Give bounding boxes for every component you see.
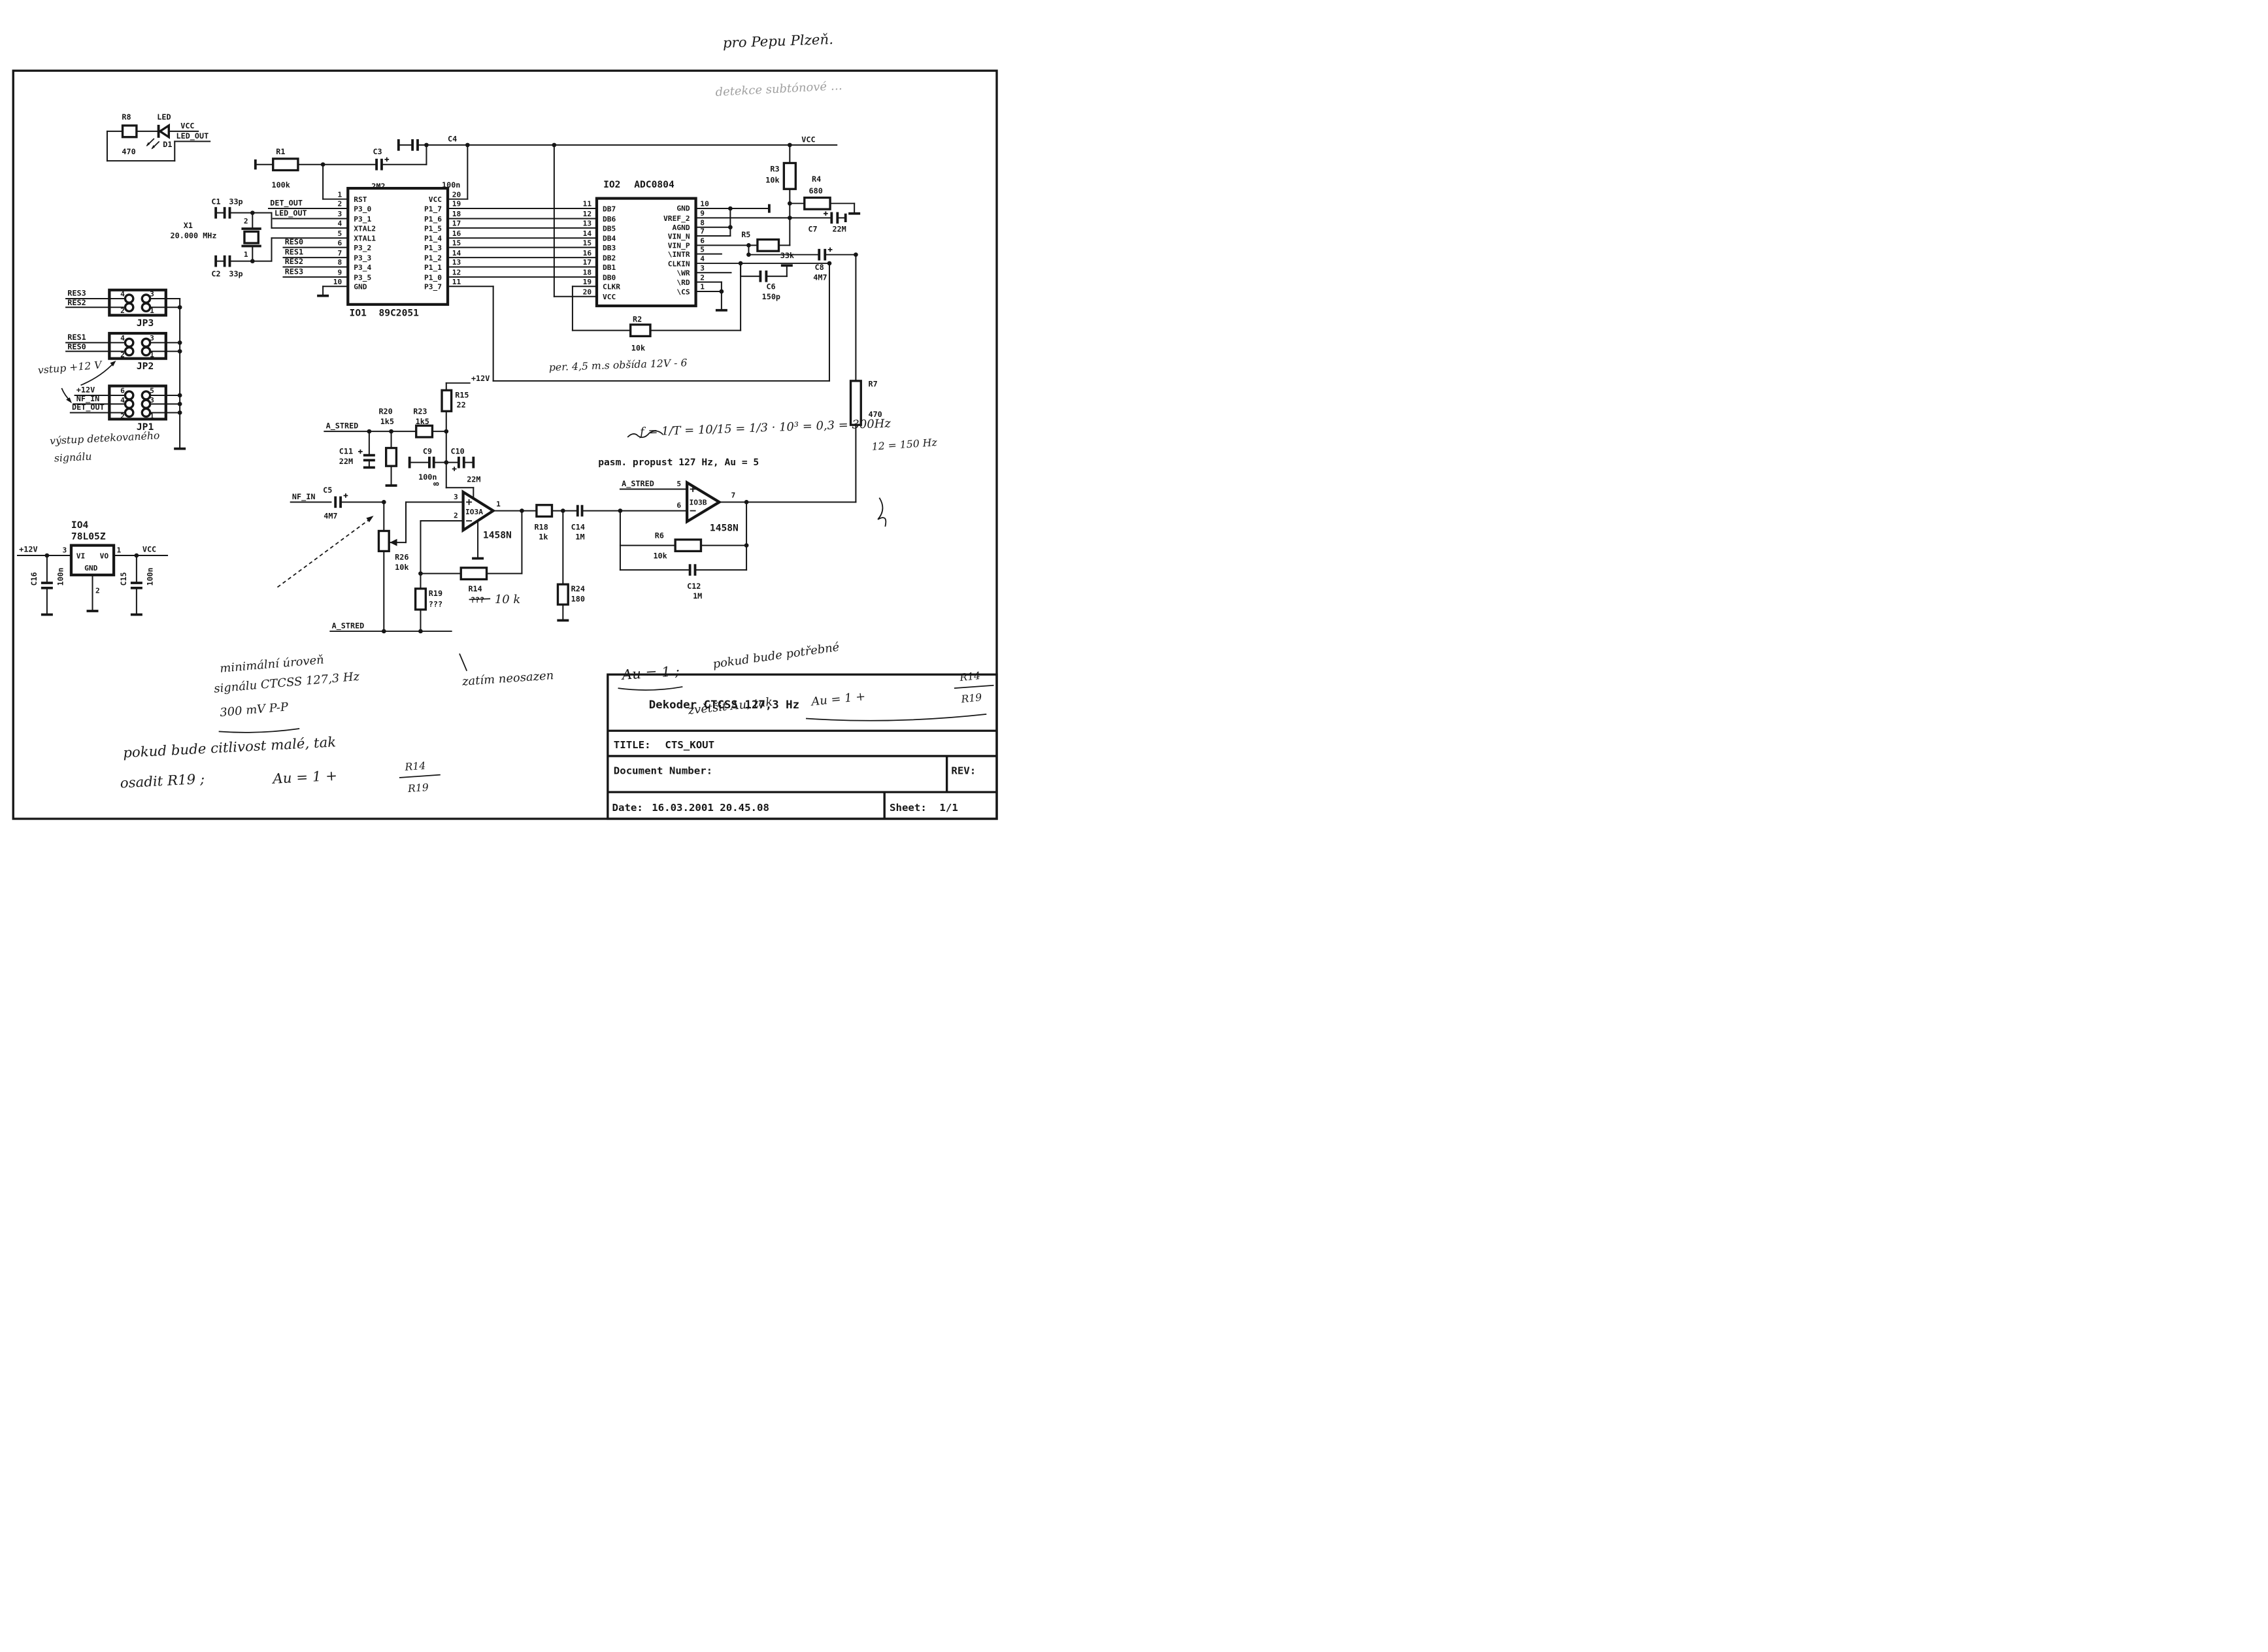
resistor-R23-ref: R23: [413, 407, 427, 416]
titleblock-doc-label: Document Number:: [614, 765, 712, 777]
io1-pin-label: P1_5: [424, 224, 442, 233]
io2-pin-number: 20: [583, 288, 592, 296]
cap-C3-ref: C3: [373, 147, 382, 156]
net-label-res0: RES0: [285, 237, 303, 246]
jumper-JP3: [109, 290, 165, 316]
handwritten-min-level-3: 300 mV P-P: [219, 700, 289, 719]
io1-pin-number: 13: [452, 258, 461, 267]
jumpers: 4 3 2 1 RES3 RES2 JP3 4 3 2 1 RES1 RES0 …: [37, 289, 186, 465]
io4-pin-3: 3: [62, 546, 67, 555]
handwriting-scribble: detekce subtónové …: [715, 79, 842, 99]
resistor-R6-ref: R6: [655, 531, 664, 540]
cap-C6-ref: C6: [766, 282, 775, 291]
titleblock-sheet: 1/1: [939, 802, 958, 814]
io2-pin-label: CLKR: [603, 283, 620, 291]
resistor-R5: [758, 240, 779, 252]
net-label-led-out: LED_OUT: [176, 131, 209, 141]
resistor-R24-ref: R24: [571, 584, 585, 593]
io2-pin-label: \WR: [676, 269, 690, 278]
io1-pin-number: 12: [452, 269, 461, 277]
io1-pin-label: P1_7: [424, 205, 442, 214]
cap-C14-value: 1M: [575, 533, 584, 542]
handwritten-sensitivity-2: osadit R19 ;: [120, 770, 205, 791]
io1-pin-label: P3_3: [354, 254, 371, 263]
handwritten-annotations-top: pro Pepu Plzeň. detekce subtónové …: [715, 31, 842, 99]
handwritten-annotations: per. 4,5 m.s obšída 12V - 6 f = 1/T = 10…: [120, 357, 993, 795]
io1-pin-number: 18: [452, 210, 461, 218]
io4-gnd: GND: [84, 564, 98, 572]
resistor-R7-ref: R7: [868, 380, 877, 389]
cap-C11-value: 22M: [339, 457, 353, 466]
resistor-R4-ref: R4: [812, 174, 821, 184]
handwritten-gain-note-2: pokud bude potřebné: [712, 640, 840, 671]
io1-pin-number: 2: [338, 200, 342, 208]
ic-io2: IO2 ADC0804 DB7 DB6 DB5 DB4 DB3 DB2 DB1 …: [554, 145, 741, 353]
net-label-det-out: DET_OUT: [72, 403, 105, 412]
resistor-R20: [386, 448, 397, 467]
resistor-R3-value: 10k: [765, 175, 779, 184]
io1-pin-number: 14: [452, 249, 461, 257]
handwritten-gain-note-1: Au = 1 ;: [620, 663, 680, 683]
opamp-io3b-part: 1458N: [710, 523, 739, 534]
crystal-circuit: C1 33p C2 33p X1 20.000 MHz 2 1: [171, 197, 348, 278]
crystal-pin-2: 2: [244, 217, 248, 225]
io2-pin-number: 3: [700, 264, 705, 273]
jumper-JP3-label: JP3: [137, 318, 154, 329]
io1-pin-number: 9: [338, 269, 342, 277]
resistor-R15-ref: R15: [455, 390, 469, 399]
data-bus: [448, 208, 597, 277]
io2-pin-number: 8: [700, 219, 705, 227]
io1-pin-label: P3_2: [354, 244, 371, 252]
io1-pin-number: 17: [452, 220, 461, 228]
io2-pin-number: 12: [583, 210, 592, 218]
resistor-R20-ref: R20: [378, 407, 392, 416]
io2-pin-label: AGND: [673, 223, 690, 232]
jumper-JP2-label: JP2: [137, 361, 154, 372]
io1-pin-number: 10: [333, 278, 342, 286]
io2-pin-number: 19: [583, 278, 592, 286]
io1-pin-number: 8: [338, 258, 342, 267]
jp1-pin: 6: [120, 387, 125, 395]
resistor-R2-ref: R2: [633, 314, 642, 323]
resistor-R19-value: ???: [429, 599, 442, 608]
io1-pin-label: P3_0: [354, 205, 371, 214]
resistor-R6: [675, 540, 701, 552]
io1-pin-label: XTAL2: [354, 224, 376, 233]
cap-C10-value: 22M: [467, 475, 480, 484]
cap-C2-ref: C2: [211, 269, 220, 278]
resistor-R8: [123, 125, 137, 137]
io1-pin-number: 15: [452, 239, 461, 247]
cap-C1-value: 33p: [229, 197, 242, 206]
handwritten-frac-den: R19: [960, 691, 983, 705]
cap-C8-value: 4M7: [813, 273, 827, 282]
led-indicator-circuit: R8 470 LED D1 VCC LED_OUT: [107, 112, 210, 161]
io2-pin-label: \RD: [676, 278, 690, 287]
opamp-io3a-part: 1458N: [483, 531, 512, 541]
net-label-res3: RES3: [285, 267, 303, 276]
io1-pin-number: 3: [338, 210, 342, 218]
io3b-pin-5: 5: [676, 480, 681, 488]
cap-C9-value: 100n: [418, 472, 437, 482]
io1-pin-label: P3_5: [354, 273, 371, 282]
cap-C16-ref: C16: [29, 572, 39, 586]
titleblock-date: 16.03.2001 20.45.08: [652, 802, 769, 814]
net-label-vcc: VCC: [180, 122, 194, 131]
crystal-X1-ref: X1: [184, 221, 193, 230]
io2-pin-label: VREF_2: [663, 214, 690, 223]
io2-pin-number: 11: [583, 200, 592, 208]
cap-C1-ref: C1: [211, 197, 220, 206]
resistor-R1-value: 100k: [272, 180, 290, 190]
io1-pin-label: RST: [354, 195, 367, 204]
jp1-pin: 4: [120, 396, 125, 405]
ic-io2-part: ADC0804: [634, 180, 675, 190]
opamp-io3a-ref: IO3A: [465, 508, 483, 516]
resistor-R18: [537, 505, 552, 517]
cap-C12-value: 1M: [693, 591, 702, 601]
handwritten-output-note2: signálu: [54, 451, 92, 465]
io3a-pin-3: 3: [454, 493, 458, 501]
jumper-JP1: [109, 386, 165, 420]
ic-io2-ref: IO2: [603, 180, 620, 190]
io2-pin-label: DB2: [603, 254, 616, 263]
titleblock-title: CTS_KOUT: [665, 739, 714, 751]
titleblock-name: Dekoder CTCSS 127,3 Hz: [649, 699, 799, 712]
resistor-R3: [784, 163, 795, 189]
resistor-R4-value: 680: [809, 186, 823, 195]
cap-C5-value: 4M7: [324, 512, 337, 521]
io2-pin-label: DB5: [603, 224, 616, 233]
handwritten-r14-value: 10 k: [495, 593, 520, 606]
cap-C15-ref: C15: [119, 572, 128, 586]
io3a-pin-8: 8: [432, 482, 441, 486]
net-label-res1: RES1: [285, 248, 303, 257]
handwritten-sensitivity-3: Au = 1 +: [271, 767, 338, 787]
io2-pin-label: DB6: [603, 215, 616, 223]
handwritten-freq-note: 12 = 150 Hz: [871, 437, 938, 453]
io2-pin-label: DB1: [603, 263, 616, 272]
resistor-R24-value: 180: [571, 595, 585, 604]
resistor-R24: [558, 584, 568, 604]
ic-io4-part: 78L05Z: [71, 532, 106, 542]
resistor-R2-value: 10k: [631, 344, 645, 353]
io1-pin-number: 19: [452, 200, 461, 208]
cap-C9-ref: C9: [423, 446, 432, 455]
net-label-12v: +12V: [76, 386, 95, 395]
io2-pin-number: 7: [700, 227, 705, 236]
jp1-pin: 5: [150, 387, 154, 395]
resistor-R3-ref: R3: [770, 165, 779, 174]
handwritten-not-fitted: zatím neosazen: [461, 669, 554, 688]
cap-C15-value: 100n: [145, 567, 154, 586]
net-label-res2: RES2: [285, 257, 303, 266]
io1-pin-label: P1_4: [424, 235, 442, 243]
filter-stage-2: A_STRED 5 6 IO3B 7 1458N R6 10k C12 1M p…: [598, 431, 856, 601]
adc-support-network: C7 22M R3 10k R4 680 R5 33k C8 4M7 C6 15…: [696, 145, 882, 502]
io2-pin-label: DB0: [603, 273, 616, 282]
io2-pin-label: DB3: [603, 244, 616, 252]
net-label-det-out: DET_OUT: [270, 199, 303, 208]
io2-pin-label: GND: [676, 204, 690, 212]
handwritten-jp-note: vstup +12 V: [37, 359, 103, 376]
io4-pin-1: 1: [117, 546, 122, 555]
resistor-R23-value: 1k5: [416, 417, 429, 426]
handwritten-min-level-1: minimální úroveň: [219, 653, 324, 675]
resistor-R5-value: 33k: [780, 251, 794, 260]
net-label-12v-reg: +12V: [19, 545, 37, 554]
io2-pin-number: 17: [583, 258, 592, 267]
net-label-led-out: LED_OUT: [275, 208, 307, 218]
io1-pin-label: P3_4: [354, 263, 371, 272]
ic-io1-ref: IO1: [350, 308, 367, 319]
io1-pin-label: P3_7: [424, 283, 442, 291]
io4-vi: VI: [76, 552, 86, 561]
net-label-nf-in-2: NF_IN: [292, 492, 315, 502]
io2-pin-label: CLKIN: [668, 259, 690, 268]
io1-pin-label: XTAL1: [354, 235, 376, 243]
resistor-R19: [416, 589, 426, 610]
ic-io4-ref: IO4: [71, 520, 89, 531]
reset-rc-circuit: R1 100k C3 2M2 C4 100n VCC: [256, 134, 837, 199]
io2-pin-number: 16: [583, 249, 592, 257]
io2-pin-number: 1: [700, 283, 705, 291]
io2-pin-number: 14: [583, 229, 592, 238]
net-label-a-stred-bottom: A_STRED: [332, 621, 365, 631]
title-block: Dekoder CTCSS 127,3 Hz TITLE: CTS_KOUT D…: [608, 674, 997, 819]
cap-C7-value: 22M: [832, 224, 846, 233]
cap-C14-ref: C14: [571, 522, 585, 531]
resistor-R26-ref: R26: [395, 553, 409, 562]
resistor-R4: [805, 197, 830, 209]
io2-pin-label: DB7: [603, 205, 616, 214]
opamp-io3b-ref: IO3B: [689, 499, 707, 507]
io2-pin-number: 5: [700, 245, 705, 254]
resistor-R18-ref: R18: [535, 522, 548, 531]
io1-pin-label: P1_1: [424, 263, 442, 272]
io1-pin-number: 6: [338, 239, 342, 247]
diode-D1-ref: D1: [163, 140, 172, 149]
resistor-R8-value: 470: [122, 147, 135, 156]
io2-pin-number: 15: [583, 239, 592, 247]
io2-pin-number: 4: [700, 255, 705, 263]
jp1-pin: 3: [150, 396, 154, 405]
resistor-R5-ref: R5: [741, 230, 750, 239]
schematic-canvas: pro Pepu Plzeň. detekce subtónové … R8 4…: [0, 0, 1134, 826]
cap-C11-ref: C11: [339, 446, 353, 455]
io2-pin-label: DB4: [603, 235, 616, 243]
net-label-a-stred: A_STRED: [326, 421, 359, 431]
frame: [13, 71, 997, 819]
titleblock-rev-label: REV:: [951, 765, 976, 777]
io2-pin-label: \CS: [676, 288, 690, 296]
regulator-circuit: +12V VI VO GND IO4 78L05Z 3 1 2 VCC C16 …: [18, 520, 167, 614]
io4-pin-2: 2: [95, 587, 100, 595]
io1-pin-number: 4: [338, 220, 342, 228]
handwritten-sensitivity-1: pokud bude citlivost malé, tak: [123, 734, 337, 761]
net-label-res0: RES0: [67, 342, 86, 351]
cap-C8-ref: C8: [815, 263, 824, 272]
resistor-R14: [461, 568, 486, 580]
net-label-res1: RES1: [67, 333, 86, 342]
io2-pin-number: 10: [700, 200, 709, 208]
io1-pin-label: P1_2: [424, 254, 442, 263]
io1-pin-number: 16: [452, 229, 461, 238]
net-label-a-stred-io3b: A_STRED: [622, 479, 654, 489]
io4-vo: VO: [100, 552, 109, 561]
resistor-R1-ref: R1: [276, 147, 285, 156]
titleblock-date-label: Date:: [612, 802, 643, 814]
io2-pin-number: 6: [700, 237, 705, 245]
net-label-vcc-rail: VCC: [801, 135, 815, 144]
titleblock-sheet-label: Sheet:: [890, 802, 927, 814]
crystal-X1: [244, 231, 258, 243]
resistor-R19-ref: R19: [429, 589, 442, 598]
resistor-R8-ref: R8: [122, 112, 131, 122]
handwritten-sens-frac-num: R14: [404, 760, 426, 773]
crystal-pin-1: 1: [244, 250, 248, 259]
cap-C6-value: 150p: [762, 292, 780, 301]
handwritten-sens-frac-den: R19: [407, 782, 429, 795]
resistor-R26-value: 10k: [395, 563, 409, 572]
resistor-R20-value: 1k5: [380, 417, 394, 426]
cap-C5-ref: C5: [323, 486, 332, 495]
potentiometer-R26: [378, 531, 389, 551]
net-label-res3: RES3: [67, 289, 86, 298]
jp2-pin: 4: [120, 334, 125, 342]
net-label-vcc-reg: VCC: [142, 545, 156, 554]
scanned-schematic-page: pro Pepu Plzeň. detekce subtónové … R8 4…: [0, 0, 1134, 826]
io2-pin-number: 9: [700, 209, 705, 218]
resistor-R2: [631, 325, 650, 337]
crystal-X1-value: 20.000 MHz: [171, 231, 217, 240]
handwritten-frac-num: R14: [958, 670, 981, 684]
led-label: LED: [157, 112, 171, 122]
io1-pin-number: 7: [338, 249, 342, 257]
net-label-12v-filter: +12V: [471, 374, 490, 383]
io1-pin-label: P3_1: [354, 215, 371, 223]
io1-pin-label: VCC: [429, 195, 442, 204]
ic-io1-part: 89C2051: [378, 308, 419, 319]
net-label-res2: RES2: [67, 298, 86, 307]
io2-pin-number: 18: [583, 269, 592, 277]
led-diode-D1: [160, 125, 169, 137]
cap-C4-ref: C4: [448, 134, 457, 143]
io1-pin-label: GND: [354, 283, 367, 291]
resistor-R6-value: 10k: [653, 552, 667, 561]
io1-pin-number: 1: [338, 190, 342, 199]
io2-pin-label: VCC: [603, 293, 616, 301]
dedication-note: pro Pepu Plzeň.: [722, 31, 833, 51]
io1-pin-number: 20: [452, 190, 461, 199]
resistor-R23: [416, 425, 433, 437]
cap-C7-ref: C7: [808, 224, 817, 233]
cap-C10-ref: C10: [451, 446, 465, 455]
jp3-pin: 4: [120, 290, 125, 299]
resistor-R15-value: 22: [456, 401, 465, 410]
jp3-pin: 3: [150, 290, 154, 299]
jumper-JP2: [109, 333, 165, 359]
cap-C12-ref: C12: [687, 582, 701, 591]
io1-pin-number: 5: [338, 229, 342, 238]
resistor-R14-ref: R14: [468, 584, 482, 593]
io1-pin-label: P1_3: [424, 244, 442, 252]
titleblock-title-label: TITLE:: [614, 739, 651, 751]
io1-pin-label: P1_6: [424, 215, 442, 223]
io1-pin-number: 11: [452, 278, 461, 286]
jp2-pin: 3: [150, 334, 154, 342]
io3a-pin-2: 2: [454, 512, 458, 520]
cap-C16-value: 100n: [56, 567, 65, 586]
resistor-R15: [442, 390, 452, 411]
io2-pin-number: 2: [700, 273, 705, 282]
bandpass-note: pasm. propust 127 Hz, Au = 5: [598, 457, 759, 468]
io2-pin-label: VIN_N: [668, 232, 690, 240]
handwritten-output-note: výstup detekovaného: [50, 429, 160, 446]
handwritten-gain-note-4: Au = 1 +: [809, 689, 866, 708]
io3b-pin-7: 7: [731, 491, 735, 500]
io3a-pin-1: 1: [496, 500, 501, 508]
io2-pin-number: 13: [583, 220, 592, 228]
io1-pin-label: P1_0: [424, 273, 442, 282]
filter-stage-1: A_STRED R23 1k5 C11 22M R20 1k5 +12V R15…: [277, 374, 687, 631]
io2-pin-label: \INTR: [668, 250, 690, 259]
io3b-pin-6: 6: [676, 501, 681, 510]
resistor-R18-value: 1k: [539, 533, 548, 542]
handwritten-formula: f = 1/T = 10/15 = 1/3 · 10³ = 0,3 = 300H…: [639, 417, 892, 439]
cap-C2-value: 33p: [229, 269, 242, 278]
io2-pin-label: VIN_P: [668, 242, 690, 250]
resistor-R1: [273, 159, 298, 171]
handwritten-timing-note: per. 4,5 m.s obšída 12V - 6: [548, 357, 687, 373]
